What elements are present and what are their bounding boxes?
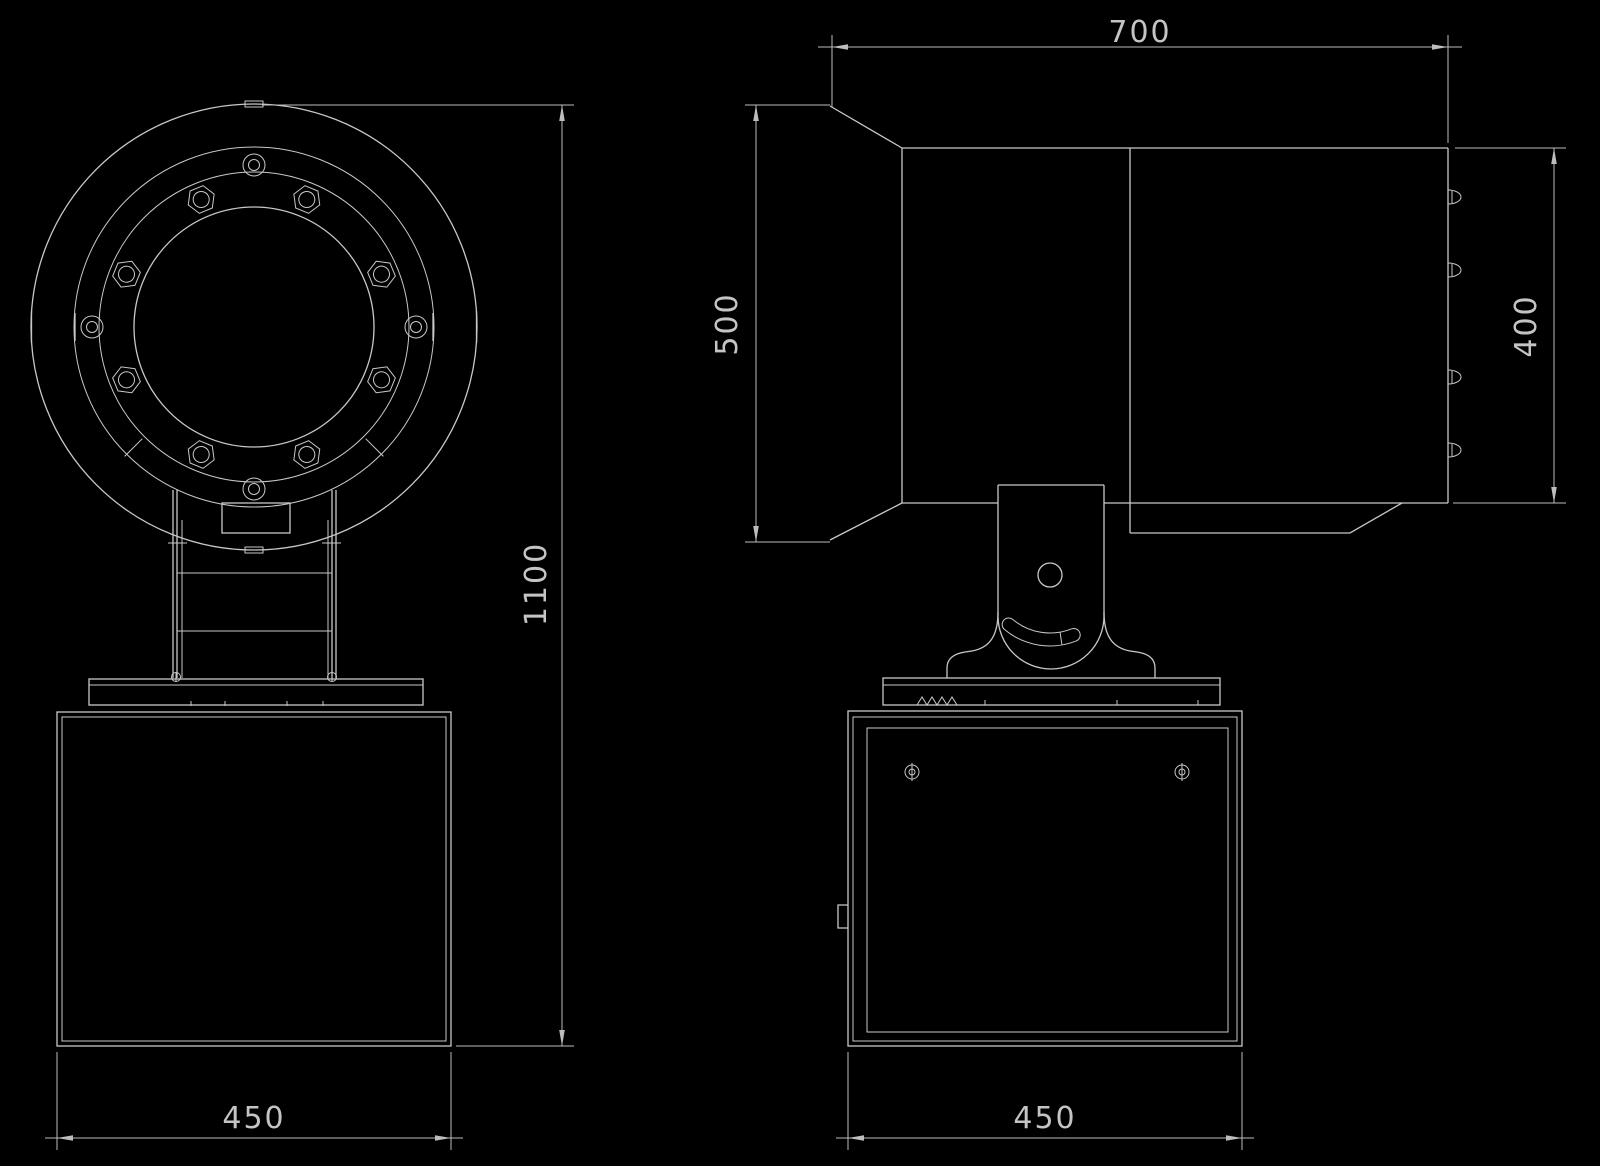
dimension-400-rear-height: 400 [1453,148,1566,503]
bezel-cone-top [830,106,902,148]
rear-bolt [1448,443,1461,457]
dim-label-450-side: 450 [1013,1101,1076,1136]
latch-hole-left [87,322,98,333]
dim-label-700: 700 [1108,15,1171,50]
panel-screw [1175,763,1189,781]
dim-label-500: 500 [710,292,745,355]
panel-screw [905,763,919,781]
hex-bolt [110,362,143,397]
flange-serration [917,697,957,705]
bezel-cone-bottom [830,503,902,540]
pivot-hole [1038,563,1062,587]
latch-hole-right [411,322,422,333]
hex-bolt [289,438,324,471]
access-door-panel [867,728,1228,1032]
ring-flats [32,101,477,553]
bolt-flange-circle [99,172,409,482]
front-view [31,101,477,1046]
bracket-arm-right [1104,612,1155,678]
bottom-cover [1130,503,1402,533]
hex-bolt [184,438,219,471]
hex-bolt [110,257,143,292]
latch-hole-bottom [249,484,260,495]
drawing-canvas: 700 500 400 1100 450 [0,0,1600,1166]
dimension-1100-total-height: 1100 [262,105,574,1046]
lens-opening-circle [134,207,374,447]
front-pedestal-box [57,712,451,1046]
dim-label-450-front: 450 [222,1101,285,1136]
rear-bolt [1448,370,1461,384]
hex-bolt [365,257,398,292]
latch-hole-top [249,160,260,171]
side-view [830,106,1461,1046]
flange-screw [328,672,337,682]
dimension-700-housing-width: 700 [818,15,1462,143]
rear-bolt [1448,263,1461,277]
dim-label-1100: 1100 [519,542,554,626]
hex-bolt-ring [110,183,398,471]
front-mount-flange [89,672,423,706]
tilt-adjustment-slot [1002,618,1080,646]
dimension-500-front-height: 500 [710,105,830,542]
technical-drawing: 700 500 400 1100 450 [0,0,1600,1166]
hex-bolt [184,183,219,216]
dimension-450-side-base: 450 [836,1052,1254,1150]
dimension-450-front-base: 450 [45,1052,463,1150]
side-pedestal-box [838,711,1242,1046]
dim-label-400: 400 [1509,294,1544,357]
column-junction-plate [222,503,290,533]
trunnion-bracket [947,485,1155,678]
rear-bolt [1448,190,1461,204]
bracket-round-bottom [998,616,1104,669]
hex-bolt [365,362,398,397]
side-mount-flange [883,678,1220,705]
lamp-housing [830,106,1461,540]
hex-bolt [289,183,324,216]
side-hinge-tab [838,905,848,928]
yoke-column [168,490,341,678]
bracket-arm-left [947,612,998,678]
